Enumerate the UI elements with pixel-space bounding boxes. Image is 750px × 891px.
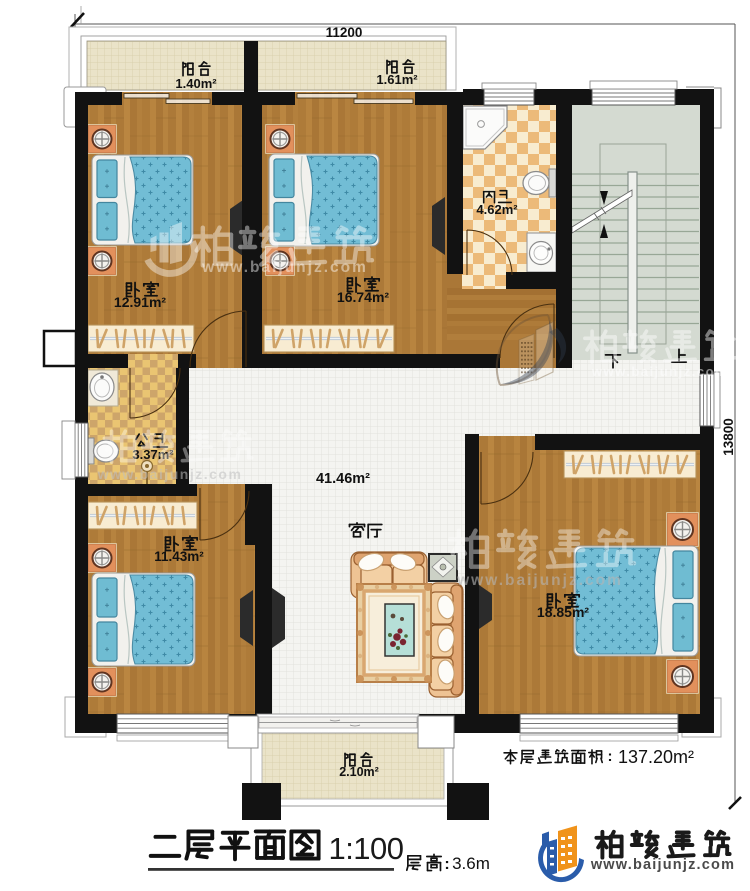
svg-text:1.40m²: 1.40m² (175, 76, 217, 91)
svg-text::: : (608, 748, 613, 765)
svg-text:137.20m²: 137.20m² (618, 747, 694, 767)
svg-text:1.61m²: 1.61m² (376, 72, 418, 87)
svg-text:www.baijunjz.com: www.baijunjz.com (591, 364, 728, 379)
svg-text:18.85m²: 18.85m² (537, 604, 589, 620)
svg-text:3.6m: 3.6m (452, 854, 490, 873)
svg-text:www.baijunjz.com: www.baijunjz.com (97, 466, 243, 482)
svg-text:11.43m²: 11.43m² (154, 549, 204, 564)
svg-text::: : (444, 856, 449, 873)
svg-text:2.10m²: 2.10m² (339, 765, 379, 779)
svg-text:1:100: 1:100 (328, 831, 403, 866)
svg-text:4.62m²: 4.62m² (476, 202, 518, 217)
svg-text:12.91m²: 12.91m² (114, 294, 166, 310)
svg-text:16.74m²: 16.74m² (337, 289, 389, 305)
svg-text:11200: 11200 (326, 25, 363, 40)
svg-text:www.baijunjz.com: www.baijunjz.com (590, 857, 735, 873)
svg-text:www.baijunjz.com: www.baijunjz.com (456, 572, 623, 589)
svg-text:41.46m²: 41.46m² (316, 471, 370, 487)
svg-text:13800: 13800 (721, 418, 736, 456)
svg-text:www.baijunjz.com: www.baijunjz.com (201, 259, 368, 276)
